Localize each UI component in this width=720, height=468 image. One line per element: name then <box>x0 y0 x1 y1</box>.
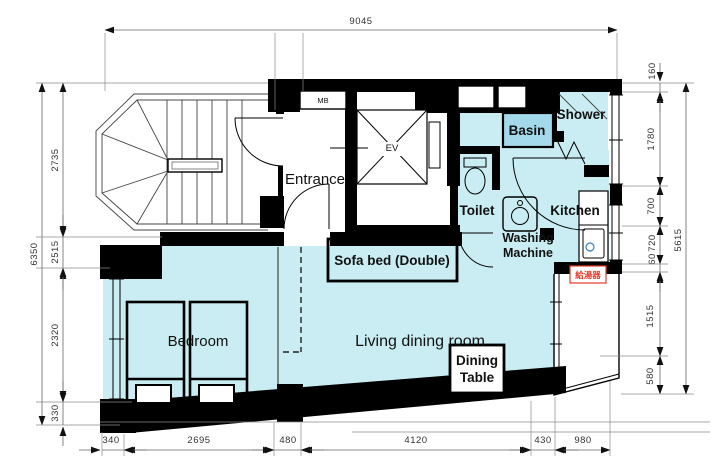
dim-right-seg1: 160 <box>647 62 658 79</box>
dim-left-seg1: 2735 <box>50 148 61 171</box>
dim-right-seg7: 580 <box>645 367 656 384</box>
dim-right-seg6: 1515 <box>645 304 656 327</box>
dim-left-total: 6350 <box>29 242 40 265</box>
kitchen-window <box>609 205 623 260</box>
washing-machine-label-2: Machine <box>503 246 553 260</box>
dim-left-seg4: 330 <box>50 404 61 421</box>
dim-right-seg5: 60 <box>647 253 658 265</box>
dim-left-seg3: 2320 <box>50 323 61 346</box>
living-dining-label: Living dining room <box>355 333 485 350</box>
water-heater-label: 給湯器 <box>575 270 601 280</box>
floor-plan-drawing: 9045 6350 2735 2515 2320 330 160 1780 70… <box>0 0 720 468</box>
meter-box-label: MB <box>317 96 328 105</box>
shower-label: Shower <box>557 107 607 122</box>
basin-label: Basin <box>509 123 546 138</box>
kitchen-counter <box>579 191 608 262</box>
corridor-door-opening <box>284 232 330 246</box>
elevator-door <box>429 122 440 168</box>
entrance-label: Entrance <box>285 171 345 188</box>
elevator-label: EV <box>386 143 399 154</box>
dim-right-seg2: 1780 <box>646 127 657 150</box>
dim-top-total: 9045 <box>349 16 372 27</box>
sofa-bed-label: Sofa bed (Double) <box>334 253 450 268</box>
bedroom-label: Bedroom <box>168 333 229 350</box>
dim-bottom-seg3: 480 <box>279 435 296 446</box>
bed-2-pillow <box>199 385 234 403</box>
staircase <box>96 94 268 230</box>
dim-bottom-seg6: 980 <box>574 435 591 446</box>
dim-bottom-seg2: 2695 <box>187 435 210 446</box>
pipe-shaft-box-2 <box>498 86 526 108</box>
toilet-label: Toilet <box>460 203 496 218</box>
dim-bottom-seg5: 430 <box>534 435 551 446</box>
kitchen-label: Kitchen <box>550 203 600 218</box>
corridor-door <box>284 184 329 229</box>
dim-bottom-seg1: 340 <box>102 435 119 446</box>
dim-left-seg2: 2515 <box>50 240 61 263</box>
dim-right-total: 5615 <box>673 228 684 251</box>
dining-table-label-1: Dining <box>456 353 498 368</box>
dim-bottom-seg4: 4120 <box>404 435 427 446</box>
pipe-shaft-box <box>458 86 494 108</box>
bed-1-pillow <box>136 385 171 403</box>
dining-table-label-2: Table <box>460 370 495 385</box>
dim-right-seg4: 720 <box>647 234 658 251</box>
shower-window <box>609 95 623 184</box>
dim-right-seg3: 700 <box>646 197 657 214</box>
washing-machine-label-1: Washing <box>502 231 554 245</box>
floor-plan-page: 9045 6350 2735 2515 2320 330 160 1780 70… <box>0 0 720 468</box>
